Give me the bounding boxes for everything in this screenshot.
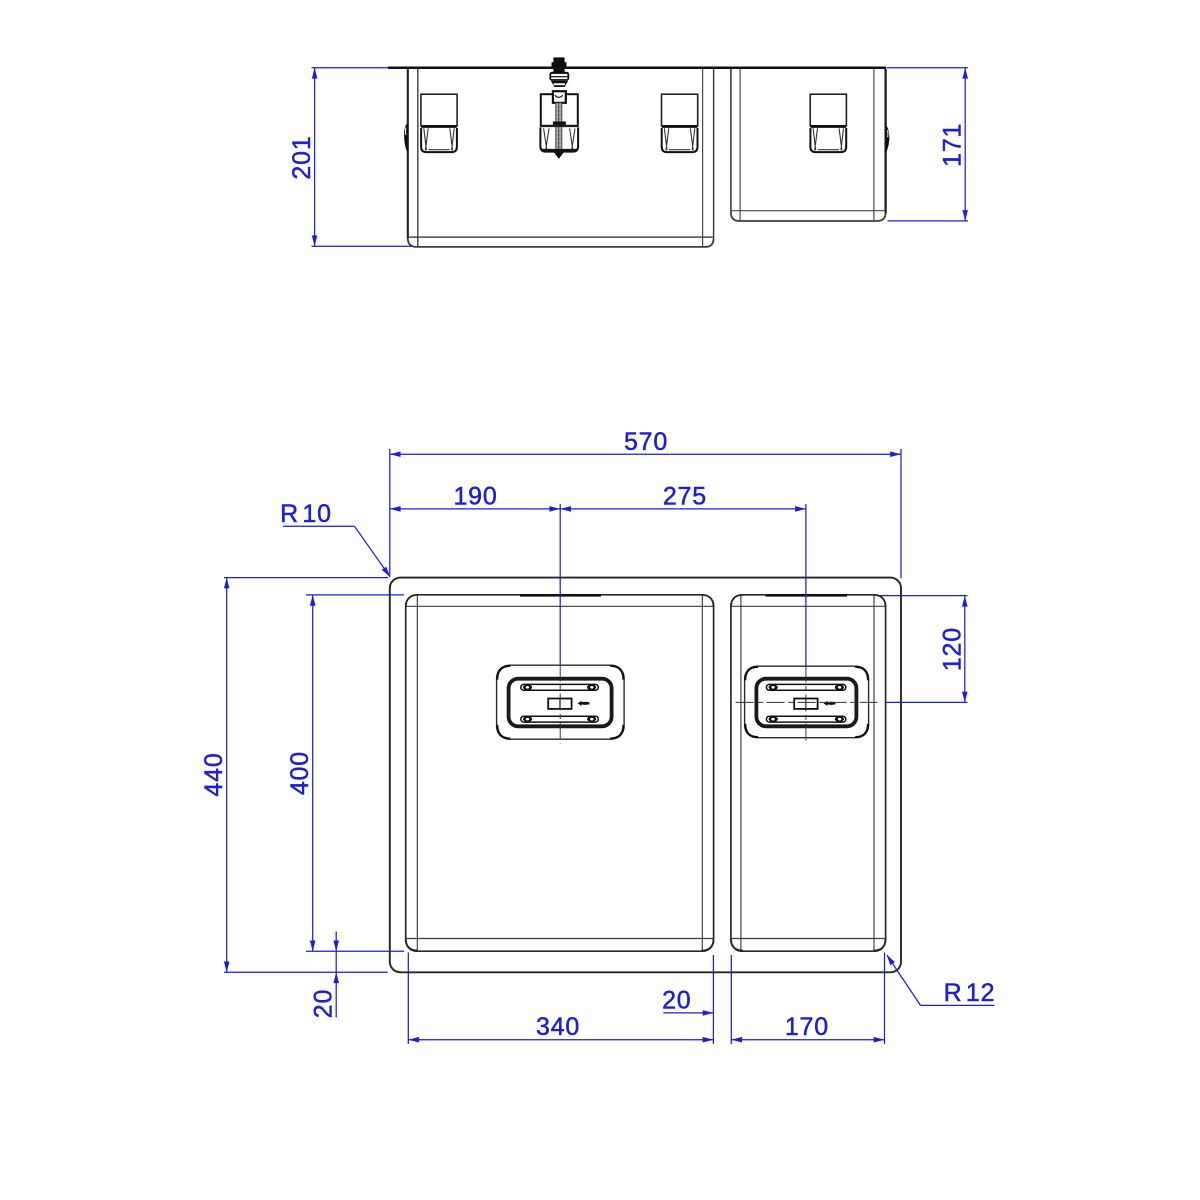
svg-text:20: 20 [310,989,338,1018]
svg-text:570: 570 [624,428,668,456]
svg-text:120: 120 [938,627,966,671]
svg-text:170: 170 [785,1013,829,1041]
svg-text:20: 20 [662,986,691,1014]
svg-text:440: 440 [200,752,228,796]
svg-text:400: 400 [286,751,314,795]
svg-text:R12: R12 [944,979,996,1007]
svg-text:201: 201 [288,135,316,179]
svg-text:275: 275 [663,482,707,510]
svg-text:171: 171 [939,123,967,167]
svg-text:190: 190 [453,482,497,510]
svg-text:R10: R10 [280,500,332,528]
svg-text:340: 340 [536,1013,580,1041]
